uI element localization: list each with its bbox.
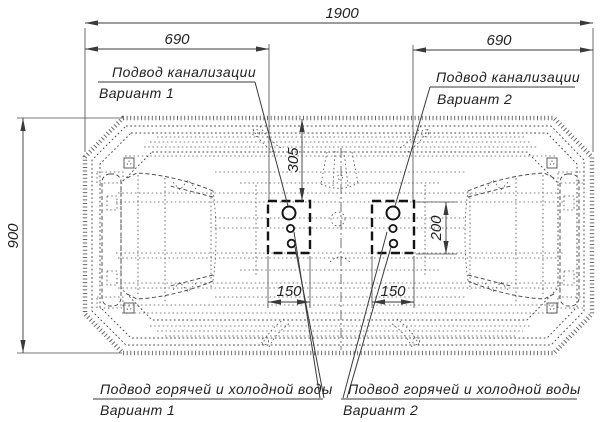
tub-outer-rim-hatched bbox=[85, 118, 592, 353]
flank-jet-fans bbox=[253, 126, 429, 347]
tub-outline bbox=[85, 118, 592, 353]
center-drain-detail bbox=[321, 151, 358, 262]
dim-text-200: 200 bbox=[428, 215, 445, 242]
label-sewage-v1-line1: Подвод канализации bbox=[112, 64, 256, 80]
tub-right-bowl bbox=[465, 158, 584, 313]
tub-rim-offset-2 bbox=[100, 133, 577, 338]
label-sewage-v1-line2: Вариант 1 bbox=[99, 85, 174, 101]
tub-interior-verticals bbox=[138, 148, 543, 350]
sewage-outlet-left bbox=[283, 207, 296, 220]
right-bottom-jet-fitting bbox=[547, 303, 557, 313]
right-backrest bbox=[560, 174, 579, 306]
cold-water-outlet-left bbox=[288, 240, 296, 248]
left-backrest bbox=[102, 174, 121, 306]
dimension-box-top-offset: 305 bbox=[285, 119, 302, 201]
tub-floor-contours bbox=[116, 137, 565, 336]
leader-sewage-v2 bbox=[395, 87, 430, 206]
dim-text-690-right: 690 bbox=[486, 32, 512, 49]
dimension-left-box-width: 150 bbox=[268, 256, 310, 308]
dim-text-150-left: 150 bbox=[276, 283, 302, 300]
dim-text-900: 900 bbox=[5, 223, 22, 249]
dimension-left-sewage-offset: 690 bbox=[85, 31, 269, 200]
leader-sewage-v1 bbox=[255, 82, 288, 206]
dim-text-150-right: 150 bbox=[380, 283, 406, 300]
left-bottom-jet-fitting bbox=[124, 303, 134, 313]
label-sewage-v2-line1: Подвод канализации bbox=[436, 69, 580, 85]
hot-water-outlet-right bbox=[389, 225, 396, 232]
hot-water-outlet-left bbox=[287, 225, 294, 232]
leader-water-v1-b bbox=[295, 247, 324, 398]
dim-text-305: 305 bbox=[285, 147, 302, 173]
drawing-canvas: 1900 690 690 900 305 200 150 150 bbox=[0, 0, 600, 422]
label-water-variant1: Подвод горячей и холодной воды Вариант 1 bbox=[93, 232, 333, 418]
label-sewage-variant1: Подвод канализации Вариант 1 bbox=[98, 64, 288, 206]
label-water-v2-line1: Подвод горячей и холодной воды bbox=[348, 381, 581, 397]
label-water-v1-line2: Вариант 1 bbox=[100, 402, 175, 418]
tub-left-bowl bbox=[97, 158, 216, 313]
cold-water-outlet-right bbox=[390, 240, 398, 248]
technical-drawing-bathtub-plan: 1900 690 690 900 305 200 150 150 bbox=[0, 0, 600, 422]
label-water-v2-line2: Вариант 2 bbox=[343, 402, 418, 418]
tub-inner-rim bbox=[121, 152, 558, 320]
left-top-jet-fitting bbox=[124, 158, 134, 168]
tub-rim-offset-1 bbox=[92, 126, 584, 345]
label-sewage-v2-line2: Вариант 2 bbox=[437, 91, 512, 107]
label-water-variant2: Подвод горячей и холодной воды Вариант 2 bbox=[341, 232, 581, 418]
label-water-v1-line1: Подвод горячей и холодной воды bbox=[100, 381, 333, 397]
leader-water-v2-a bbox=[343, 232, 387, 398]
dim-text-690-left: 690 bbox=[164, 31, 190, 48]
dimension-overall-width: 900 bbox=[5, 118, 122, 353]
dim-text-1900: 1900 bbox=[325, 5, 359, 22]
connection-zone-left bbox=[268, 201, 310, 253]
connection-zone-right bbox=[372, 201, 414, 253]
leader-water-v1-a bbox=[294, 232, 320, 398]
sewage-outlet-right bbox=[387, 207, 400, 220]
right-top-jet-fitting bbox=[547, 158, 557, 168]
